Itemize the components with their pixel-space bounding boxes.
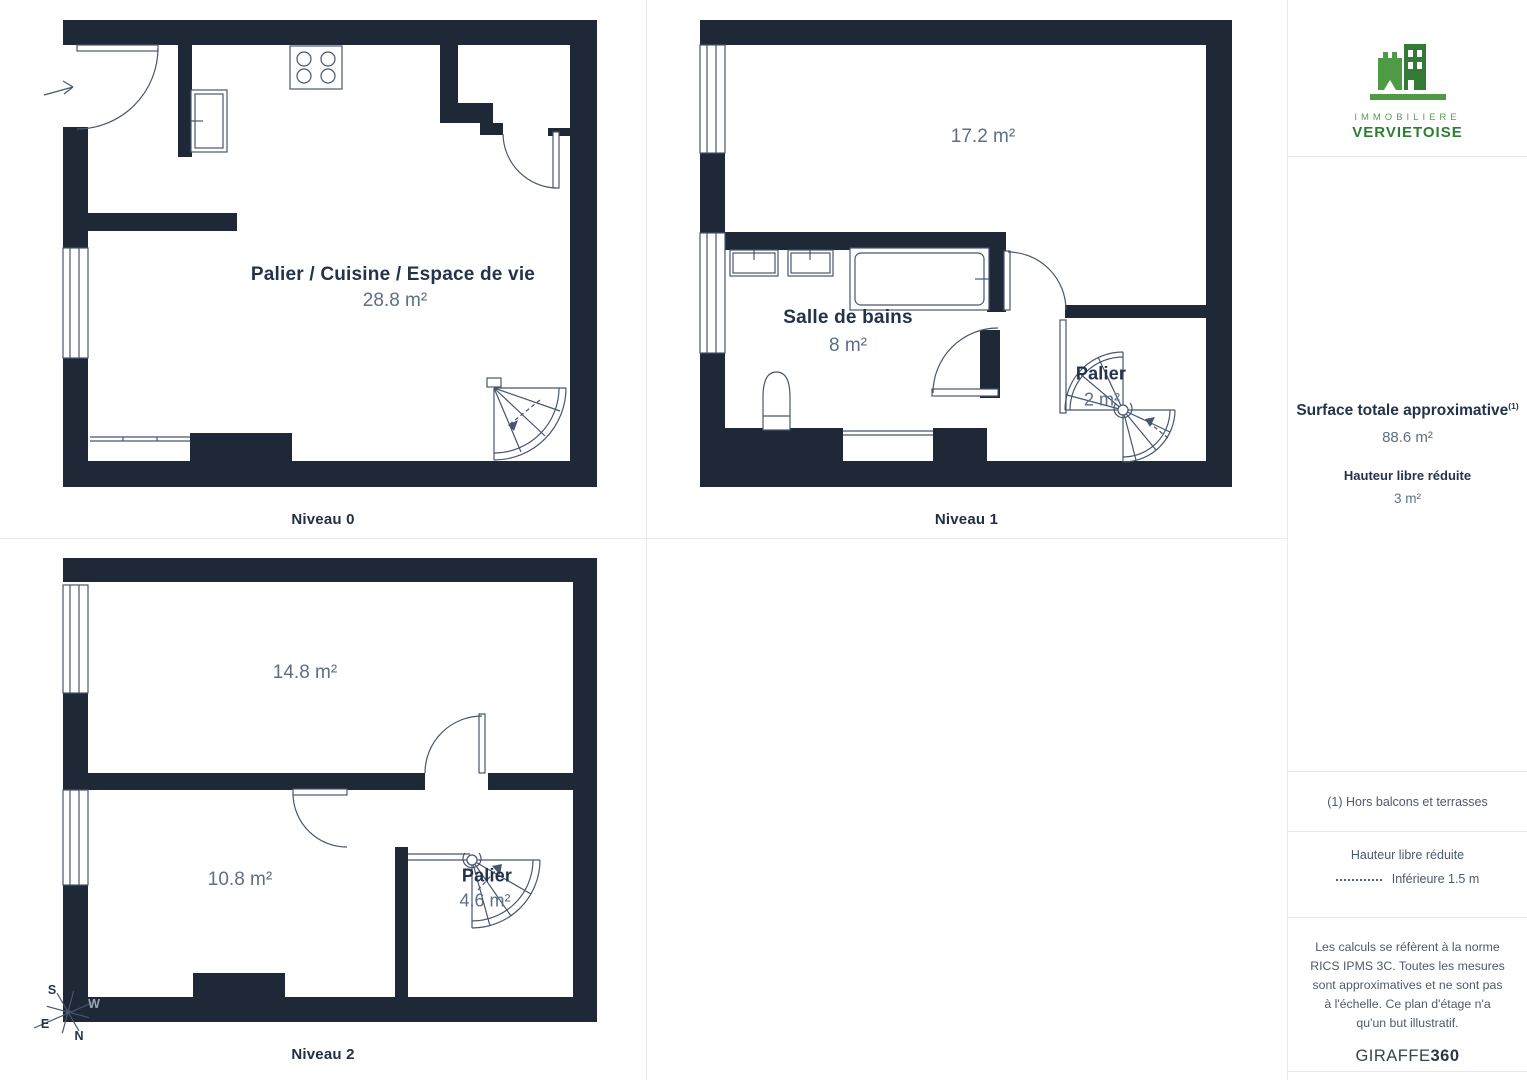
floor-plan-niveau-2: S W E N bbox=[0, 538, 646, 1080]
reduced-height-value: 3 m² bbox=[1288, 491, 1527, 506]
nook-door-arc bbox=[503, 132, 559, 188]
low-wall-lines bbox=[90, 437, 190, 441]
legend-section: Hauteur libre réduite Inférieure 1.5 m bbox=[1288, 832, 1527, 918]
compass-west: W bbox=[88, 997, 100, 1011]
reduced-height-title: Hauteur libre réduite bbox=[1288, 468, 1527, 483]
stove-icon bbox=[290, 46, 342, 89]
disclaimer-section: Les calculs se réfèrent à la norme RICS … bbox=[1288, 918, 1527, 1072]
giraffe360-brand: GIRAFFE360 bbox=[1288, 1047, 1527, 1066]
legend-row: Inférieure 1.5 m bbox=[1288, 872, 1527, 886]
panel-niveau-1: 17.2 m² Salle de bains 8 m² Palier 2 m² … bbox=[646, 0, 1287, 538]
brand-suffix: 360 bbox=[1430, 1047, 1459, 1065]
level-name: Niveau 1 bbox=[646, 511, 1287, 528]
brand-name: GIRAFFE bbox=[1355, 1047, 1430, 1065]
room-door-arc bbox=[1004, 251, 1066, 310]
legend-value: Inférieure 1.5 m bbox=[1392, 872, 1480, 886]
level-name: Niveau 2 bbox=[0, 1046, 646, 1063]
panel-niveau-0: Palier / Cuisine / Espace de vie 28.8 m²… bbox=[0, 0, 646, 538]
surface-summary-section: Surface totale approximative(1) 88.6 m² … bbox=[1288, 157, 1527, 772]
sink-icon bbox=[788, 250, 833, 276]
compass-south: S bbox=[48, 983, 56, 997]
room-label: Palier bbox=[462, 866, 512, 887]
palier-door-arc bbox=[293, 789, 347, 847]
room-area: 28.8 m² bbox=[363, 290, 427, 312]
room-label: Palier / Cuisine / Espace de vie bbox=[251, 264, 535, 286]
compass-east: E bbox=[41, 1017, 49, 1031]
entry-door-arc bbox=[77, 45, 158, 129]
floorplan-page: Palier / Cuisine / Espace de vie 28.8 m²… bbox=[0, 0, 1527, 1080]
room-area: 2 m² bbox=[1084, 390, 1120, 411]
palier-door-leaf bbox=[1060, 320, 1066, 413]
toilet-icon bbox=[763, 372, 790, 430]
footnote-text: (1) Hors balcons et terrasses bbox=[1327, 795, 1487, 809]
room-label: Salle de bains bbox=[783, 307, 913, 329]
window bbox=[700, 45, 725, 153]
room-area: 17.2 m² bbox=[951, 126, 1015, 148]
window bbox=[700, 233, 725, 353]
legend-title: Hauteur libre réduite bbox=[1288, 848, 1527, 862]
agency-name-line1: IMMOBILIERE bbox=[1288, 112, 1527, 123]
walls bbox=[63, 20, 597, 487]
agency-name-line2: VERVIETOISE bbox=[1288, 124, 1527, 141]
window bbox=[63, 248, 88, 358]
entrance-arrow bbox=[44, 81, 73, 95]
bathtub-icon bbox=[850, 248, 989, 310]
sink-icon bbox=[191, 90, 227, 152]
surface-total-title: Surface totale approximative(1) bbox=[1288, 401, 1527, 420]
compass-north: N bbox=[74, 1029, 83, 1043]
surface-total-value: 88.6 m² bbox=[1288, 429, 1527, 446]
room-door-arc bbox=[425, 714, 485, 773]
window bbox=[63, 585, 88, 693]
agency-logo-section: IMMOBILIERE VERVIETOISE bbox=[1288, 0, 1527, 157]
room-label: Palier bbox=[1076, 364, 1126, 385]
room-area: 8 m² bbox=[829, 335, 867, 357]
room-area: 4.6 m² bbox=[459, 891, 510, 912]
agency-logo-icon bbox=[1370, 36, 1446, 102]
surface-total-text: Surface totale approximative bbox=[1296, 402, 1508, 419]
info-sidebar: IMMOBILIERE VERVIETOISE Surface totale a… bbox=[1287, 0, 1527, 1080]
low-wall-lines bbox=[843, 431, 933, 435]
footnote-marker: (1) bbox=[1508, 401, 1518, 411]
window bbox=[63, 790, 88, 885]
room-area: 14.8 m² bbox=[273, 662, 337, 684]
disclaimer-text: Les calculs se réfèrent à la norme RICS … bbox=[1310, 938, 1506, 1033]
level-name: Niveau 0 bbox=[0, 511, 646, 528]
floor-plan-niveau-1 bbox=[646, 0, 1287, 538]
spiral-stairs-icon bbox=[487, 378, 566, 460]
room-area: 10.8 m² bbox=[208, 869, 272, 891]
panel-niveau-2: S W E N 14.8 m² 10.8 m² Palier 4.6 m² Ni… bbox=[0, 538, 646, 1080]
sink-icon bbox=[730, 250, 778, 276]
footnote-section: (1) Hors balcons et terrasses bbox=[1288, 772, 1527, 832]
dashed-line-sample bbox=[1336, 879, 1382, 881]
